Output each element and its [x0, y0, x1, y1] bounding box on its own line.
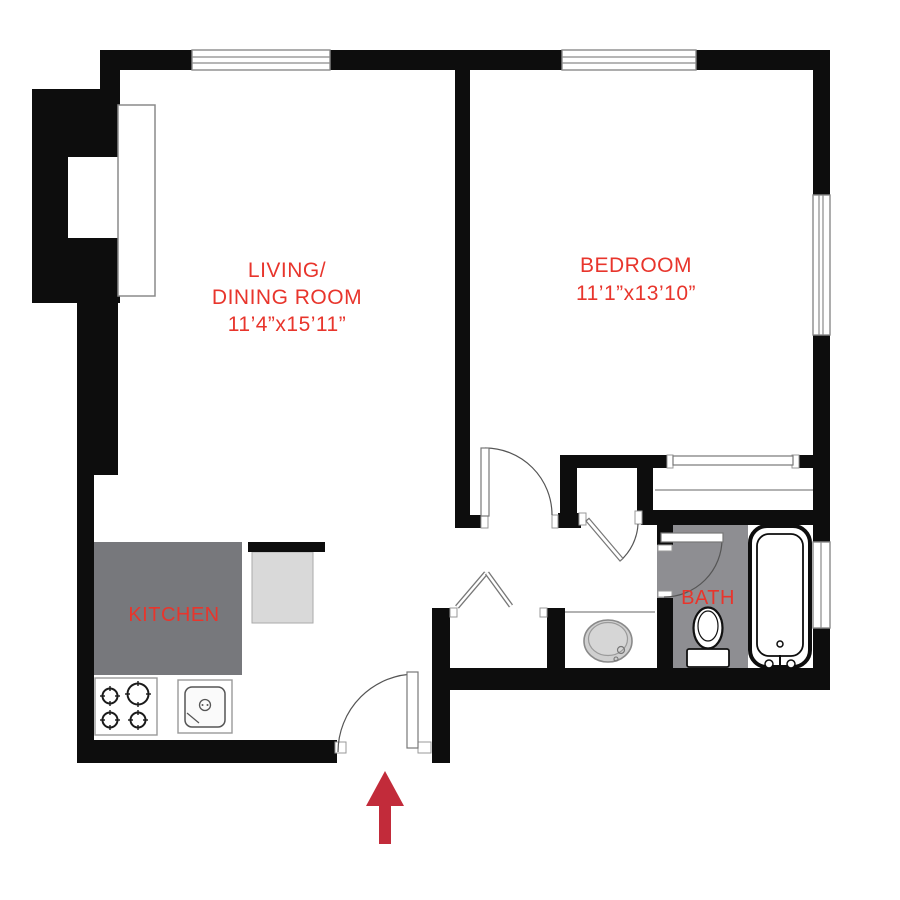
wall-bath-left-lower — [657, 598, 673, 668]
living-room-dimensions: 11’4”x15’11” — [228, 313, 346, 336]
living-room-label: LIVING/ — [248, 259, 326, 282]
wall-bottom-bath — [450, 668, 830, 690]
wall-right-mid — [813, 335, 830, 542]
wall-kitchen-stub — [248, 542, 325, 552]
entrance-arrow-icon — [366, 771, 404, 844]
closet-sliding-door — [655, 455, 813, 490]
vanity-sink — [584, 620, 632, 662]
wall-partition-foot — [455, 515, 482, 528]
window-bedroom-top — [562, 50, 696, 70]
bathtub — [750, 526, 810, 668]
wall-recess — [68, 157, 118, 238]
wall-right-low — [813, 628, 830, 690]
wall-top-left-drop — [100, 50, 120, 90]
kitchen-sink — [178, 680, 232, 733]
wall-right-top — [813, 50, 830, 195]
window-bath-right — [813, 542, 830, 628]
kitchen-counter — [252, 552, 313, 623]
bedroom-label: BEDROOM — [580, 254, 692, 277]
kitchen-label: KITCHEN — [128, 604, 219, 626]
living-room-label-2: DINING ROOM — [212, 286, 362, 309]
wall-bedroom-bottom-right — [798, 455, 813, 468]
hall-door — [579, 511, 642, 561]
bath-label: BATH — [681, 587, 735, 609]
wall-partition — [455, 70, 470, 515]
wall-left-upper — [77, 303, 118, 475]
floor-plan: LIVING/ DINING ROOM 11’4”x15’11” BEDROOM… — [0, 0, 900, 900]
wall-hall-divider — [637, 458, 653, 513]
bedroom-door — [481, 448, 558, 528]
closet-bifold-door — [450, 573, 547, 617]
wall-bath-top — [641, 510, 830, 525]
wall-entry-step — [432, 608, 450, 763]
living-builtin-closet — [118, 105, 155, 296]
stove — [95, 678, 157, 735]
window-living-top — [192, 50, 330, 70]
wall-hall-stub — [558, 513, 581, 528]
wall-left-lower — [77, 475, 94, 763]
wall-bottom-kitchen — [77, 740, 337, 763]
bedroom-dimensions: 11’1”x13’10” — [576, 282, 696, 305]
window-bedroom-right — [813, 195, 830, 335]
entry-door — [335, 672, 431, 753]
wall-hallcloset-right — [547, 608, 565, 668]
